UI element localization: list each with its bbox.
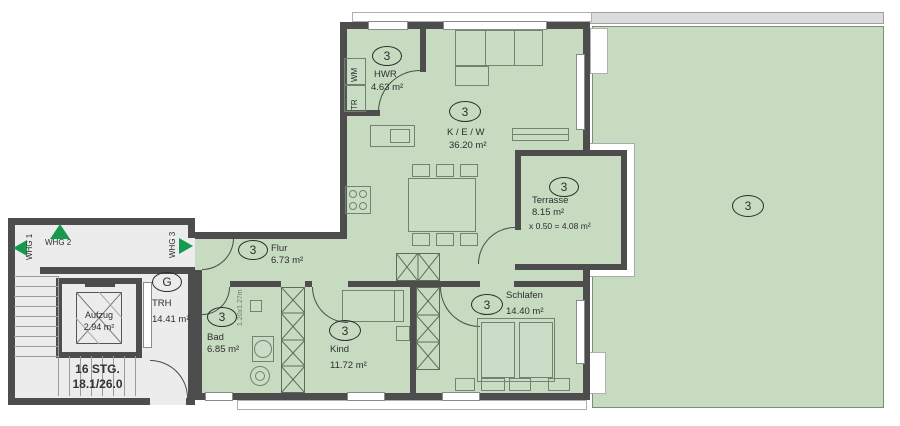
sofa-chaise — [455, 66, 489, 86]
toilet-seat — [255, 371, 265, 381]
kind-bed-line — [394, 290, 395, 322]
chair — [460, 233, 478, 246]
terrasse-area: 8.15 m² — [532, 207, 564, 218]
burner-1 — [349, 190, 357, 198]
wall-mid-c — [514, 281, 583, 287]
wall-terrace-left — [515, 150, 521, 230]
kitchen-sink-basin — [390, 129, 410, 143]
window-bad — [205, 392, 233, 401]
flur-area: 6.73 m² — [271, 255, 303, 266]
stairs-dim-label: 18.1/26.0 — [55, 377, 140, 391]
room-badge-flur: 3 — [238, 240, 268, 260]
whg3-arrow-icon — [179, 238, 193, 254]
chair — [436, 164, 454, 177]
shaft-dimension-label: 1.20x1.27m — [236, 268, 245, 326]
wall-ext-left-a — [195, 232, 202, 238]
room-badge-terrasse: 3 — [549, 177, 579, 197]
room-badge-schlafen: 3 — [471, 294, 503, 315]
bed-cabinet — [548, 378, 570, 391]
hwr-name: HWR — [374, 69, 397, 80]
shaft-access — [250, 300, 262, 312]
window-kind — [347, 392, 385, 401]
bottom-window-sill — [237, 400, 587, 410]
sofa — [455, 30, 543, 66]
facade-box-top — [590, 28, 608, 74]
kew-name: K / E / W — [447, 127, 484, 138]
sofa-seam-1 — [485, 30, 486, 66]
whg1-label: WHG 1 — [25, 226, 34, 260]
whg2-arrow-icon — [50, 224, 70, 239]
flur-name: Flur — [271, 243, 287, 254]
sideboard-line — [512, 134, 569, 135]
wall-terrace-bottom — [515, 264, 627, 270]
wall-hwr-right — [420, 22, 426, 72]
terrasse-name: Terrasse — [532, 195, 568, 206]
room-badge-garten: 3 — [732, 195, 764, 217]
whg2-label: WHG 2 — [45, 238, 71, 247]
aufzug-label: Aufzug — [66, 310, 132, 321]
facade-box-bottom — [588, 352, 606, 394]
kind-area: 11.72 m² — [330, 360, 367, 371]
schlafen-area: 14.40 m² — [506, 306, 544, 317]
room-badge-hwr: 3 — [372, 46, 402, 66]
stairs-upper-flight — [14, 276, 59, 360]
trh-door-panel — [143, 282, 152, 348]
window-kew-top — [443, 21, 547, 30]
room-badge-kind: 3 — [329, 320, 361, 341]
bed-cabinet — [481, 378, 505, 391]
washing-machine-label: WM — [350, 62, 359, 82]
dryer-label: TR — [350, 90, 359, 110]
stairs-count-label: 16 STG. — [55, 362, 140, 376]
kind-nightstand — [396, 326, 410, 341]
terrasse-calc: x 0.50 = 4.08 m² — [529, 221, 591, 232]
burner-4 — [359, 202, 367, 210]
window-schlafen-bottom — [442, 392, 480, 401]
bed-cabinet — [509, 378, 531, 391]
wall-stairwell-right-b — [188, 270, 195, 405]
chair — [460, 164, 478, 177]
room-badge-bad: 3 — [207, 307, 237, 327]
trh-badge: G — [152, 272, 182, 292]
stove — [345, 186, 371, 214]
mattress-left — [481, 322, 515, 378]
whg3-label: WHG 3 — [168, 224, 177, 258]
bad-area: 6.85 m² — [207, 344, 239, 355]
garden-area — [592, 26, 884, 408]
wardrobe-schlafen — [416, 287, 440, 370]
mattress-right — [519, 322, 553, 378]
trh-label: TRH — [152, 298, 172, 309]
chair — [436, 233, 454, 246]
wardrobe-kew — [396, 253, 440, 281]
window-hwr — [368, 21, 408, 30]
wall-bottom — [195, 393, 590, 400]
burner-2 — [359, 190, 367, 198]
window-kew-right — [576, 54, 585, 130]
bad-name: Bad — [207, 332, 224, 343]
wall-stairwell-top — [8, 218, 195, 225]
roof-band — [585, 12, 884, 24]
hwr-area: 4.63 m² — [371, 82, 403, 93]
wall-ext-left-b — [195, 270, 202, 400]
wall-stairwell-bottom-a — [8, 398, 150, 405]
aufzug-area: 2.94 m² — [66, 322, 132, 333]
kew-area: 36.20 m² — [449, 140, 487, 151]
sofa-seam-2 — [514, 30, 515, 66]
wall-lift-right — [136, 278, 142, 358]
trh-area: 14.41 m² — [152, 314, 190, 325]
lift-door — [85, 283, 115, 287]
floor-plan: WM TR WHG 1 WHG 2 WHG 3 Aufzug 2.94 m² G… — [0, 0, 900, 426]
wall-mid-a — [305, 281, 312, 287]
wall-terrace-top — [515, 150, 627, 156]
window-schlafen-right — [576, 300, 585, 364]
bath-sink-basin — [254, 340, 272, 358]
schlafen-name: Schlafen — [506, 290, 543, 301]
chair — [412, 164, 430, 177]
dining-table — [408, 178, 476, 232]
kind-name: Kind — [330, 344, 349, 355]
bed-cabinet — [455, 378, 475, 391]
installation-shaft — [281, 287, 305, 393]
room-badge-kew: 3 — [449, 101, 481, 122]
wall-terrace-right — [621, 150, 627, 270]
wall-stairwell-right-a — [188, 218, 195, 238]
burner-3 — [349, 202, 357, 210]
chair — [412, 233, 430, 246]
